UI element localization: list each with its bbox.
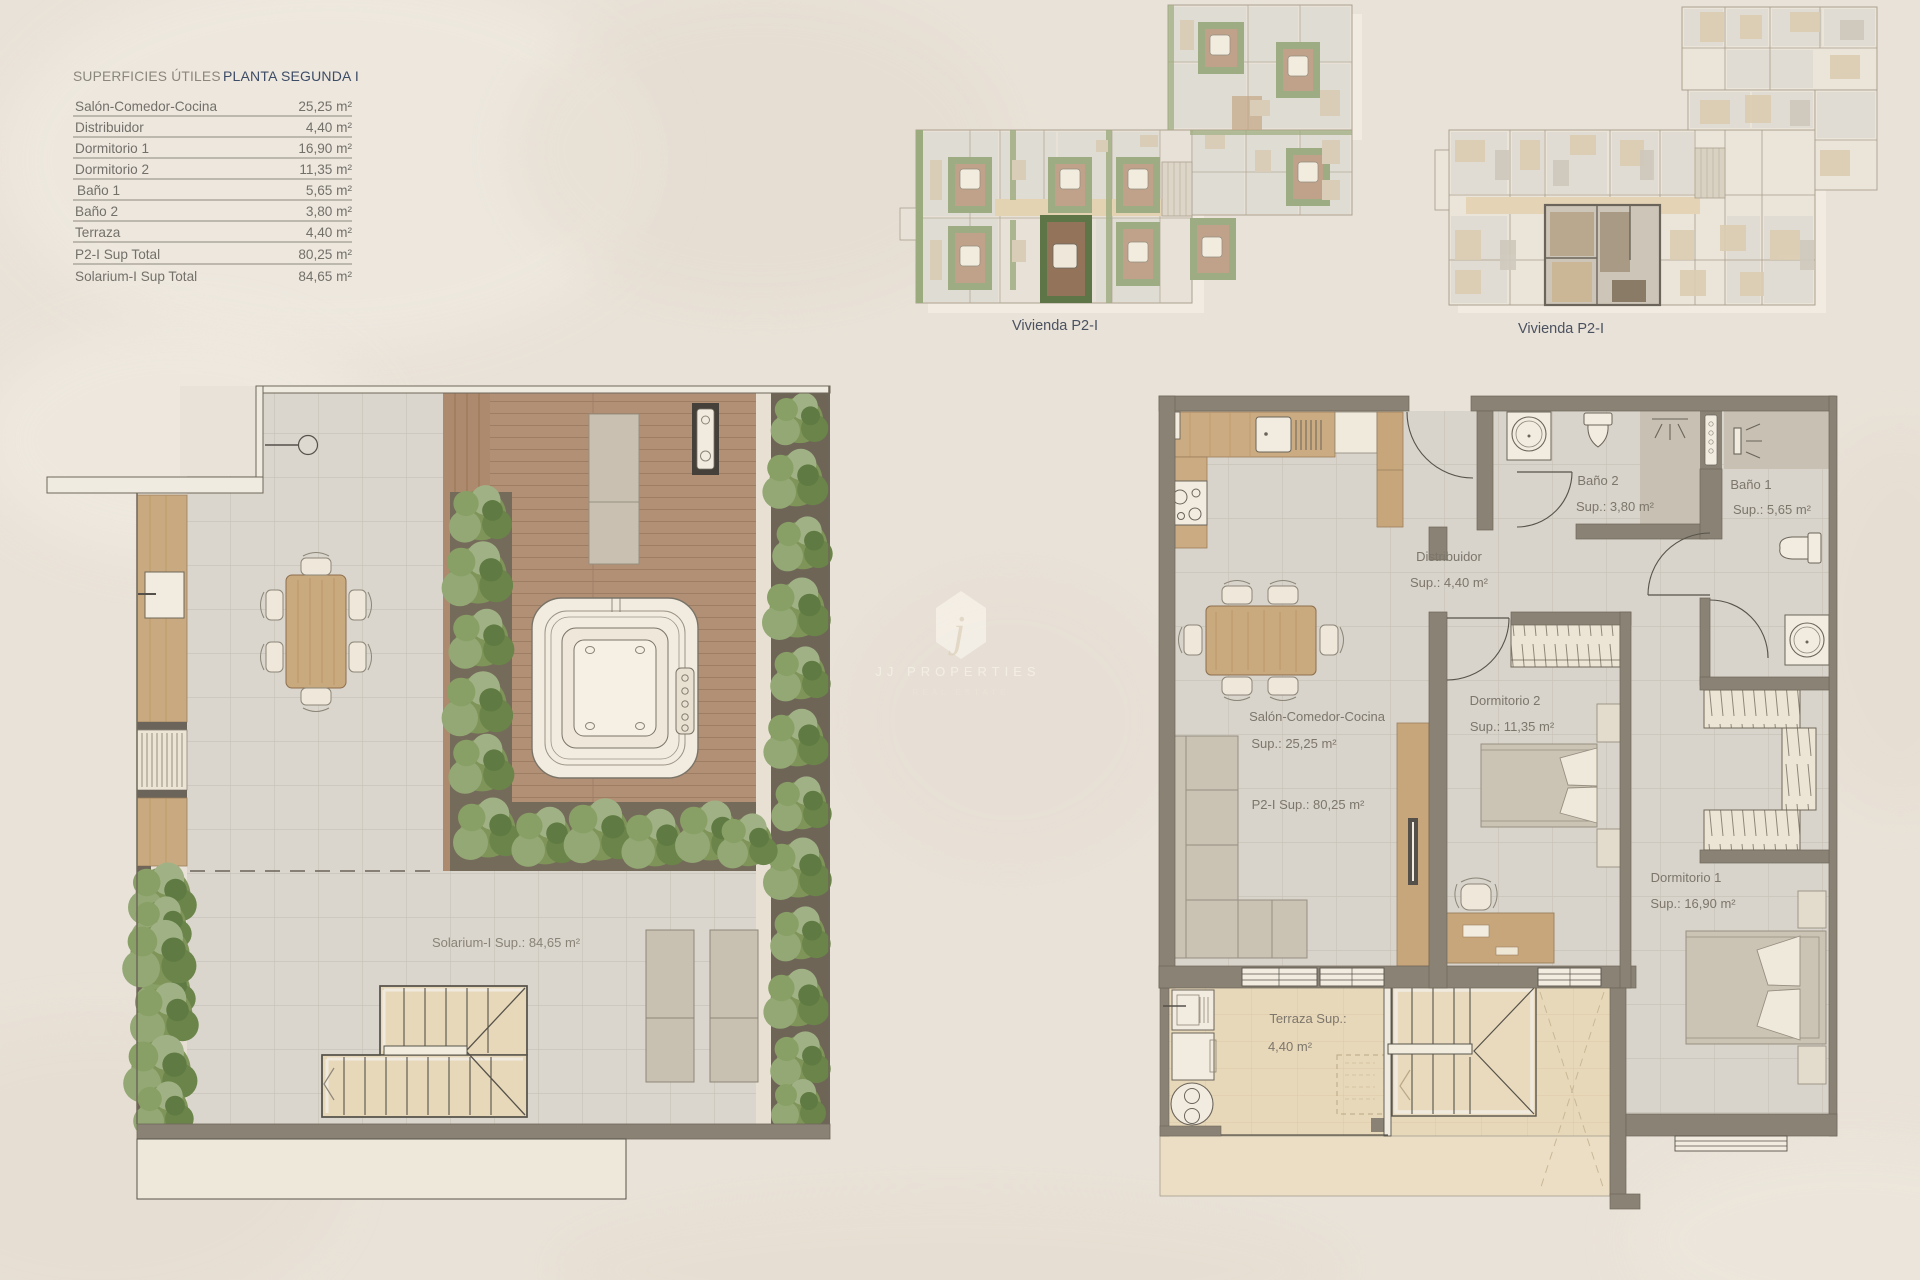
svg-text:5,65 m²: 5,65 m² bbox=[306, 183, 353, 198]
svg-text:4,40 m²: 4,40 m² bbox=[1268, 1039, 1313, 1054]
svg-text:P2-I Sup.: 80,25 m²: P2-I Sup.: 80,25 m² bbox=[1252, 797, 1365, 812]
svg-text:Sup.: 4,40 m²: Sup.: 4,40 m² bbox=[1410, 575, 1489, 590]
svg-text:Solarium-I Sup.: 84,65 m²: Solarium-I Sup.: 84,65 m² bbox=[432, 935, 581, 950]
svg-text:REAL ESTATE: REAL ESTATE bbox=[913, 688, 1010, 697]
svg-text:Sup.: 3,80 m²: Sup.: 3,80 m² bbox=[1576, 499, 1655, 514]
svg-text:11,35 m²: 11,35 m² bbox=[299, 162, 352, 177]
svg-text:Terraza Sup.:: Terraza Sup.: bbox=[1269, 1011, 1346, 1026]
svg-text:Vivienda P2-I: Vivienda P2-I bbox=[1012, 318, 1098, 334]
svg-text:25,25 m²: 25,25 m² bbox=[298, 99, 352, 114]
svg-text:16,90 m²: 16,90 m² bbox=[298, 141, 352, 156]
svg-text:Baño 2: Baño 2 bbox=[1577, 473, 1618, 488]
svg-text:Baño 1: Baño 1 bbox=[77, 183, 120, 198]
svg-text:SUPERFICIES ÚTILES: SUPERFICIES ÚTILES bbox=[73, 68, 221, 84]
svg-text:Solarium-I Sup Total: Solarium-I Sup Total bbox=[75, 269, 197, 284]
svg-text:PLANTA SEGUNDA I: PLANTA SEGUNDA I bbox=[223, 68, 359, 84]
svg-text:Sup.: 5,65 m²: Sup.: 5,65 m² bbox=[1733, 502, 1812, 517]
svg-text:Dormitorio 1: Dormitorio 1 bbox=[75, 141, 149, 156]
svg-text:Salón-Comedor-Cocina: Salón-Comedor-Cocina bbox=[1249, 709, 1386, 724]
svg-text:Terraza: Terraza bbox=[75, 225, 121, 240]
svg-text:Distribuidor: Distribuidor bbox=[75, 120, 144, 135]
svg-text:4,40 m²: 4,40 m² bbox=[306, 225, 353, 240]
svg-text:Vivienda P2-I: Vivienda P2-I bbox=[1518, 321, 1604, 337]
svg-text:80,25 m²: 80,25 m² bbox=[298, 247, 352, 262]
svg-text:Sup.: 11,35 m²: Sup.: 11,35 m² bbox=[1470, 719, 1555, 734]
svg-text:JJ PROPERTIES: JJ PROPERTIES bbox=[875, 664, 1040, 679]
svg-text:Distribuidor: Distribuidor bbox=[1416, 549, 1482, 564]
svg-text:P2-I Sup Total: P2-I Sup Total bbox=[75, 247, 160, 262]
svg-text:Sup.: 16,90 m²: Sup.: 16,90 m² bbox=[1650, 896, 1736, 911]
svg-text:84,65 m²: 84,65 m² bbox=[298, 269, 352, 284]
svg-text:Dormitorio 2: Dormitorio 2 bbox=[75, 162, 149, 177]
svg-text:Dormitorio 1: Dormitorio 1 bbox=[1651, 870, 1722, 885]
svg-text:Baño 2: Baño 2 bbox=[75, 204, 118, 219]
svg-text:Sup.: 25,25 m²: Sup.: 25,25 m² bbox=[1251, 736, 1337, 751]
svg-text:4,40 m²: 4,40 m² bbox=[306, 120, 353, 135]
svg-text:3,80 m²: 3,80 m² bbox=[306, 204, 353, 219]
svg-text:Dormitorio 2: Dormitorio 2 bbox=[1470, 693, 1541, 708]
svg-text:Salón-Comedor-Cocina: Salón-Comedor-Cocina bbox=[75, 99, 217, 114]
svg-text:Baño 1: Baño 1 bbox=[1730, 477, 1771, 492]
